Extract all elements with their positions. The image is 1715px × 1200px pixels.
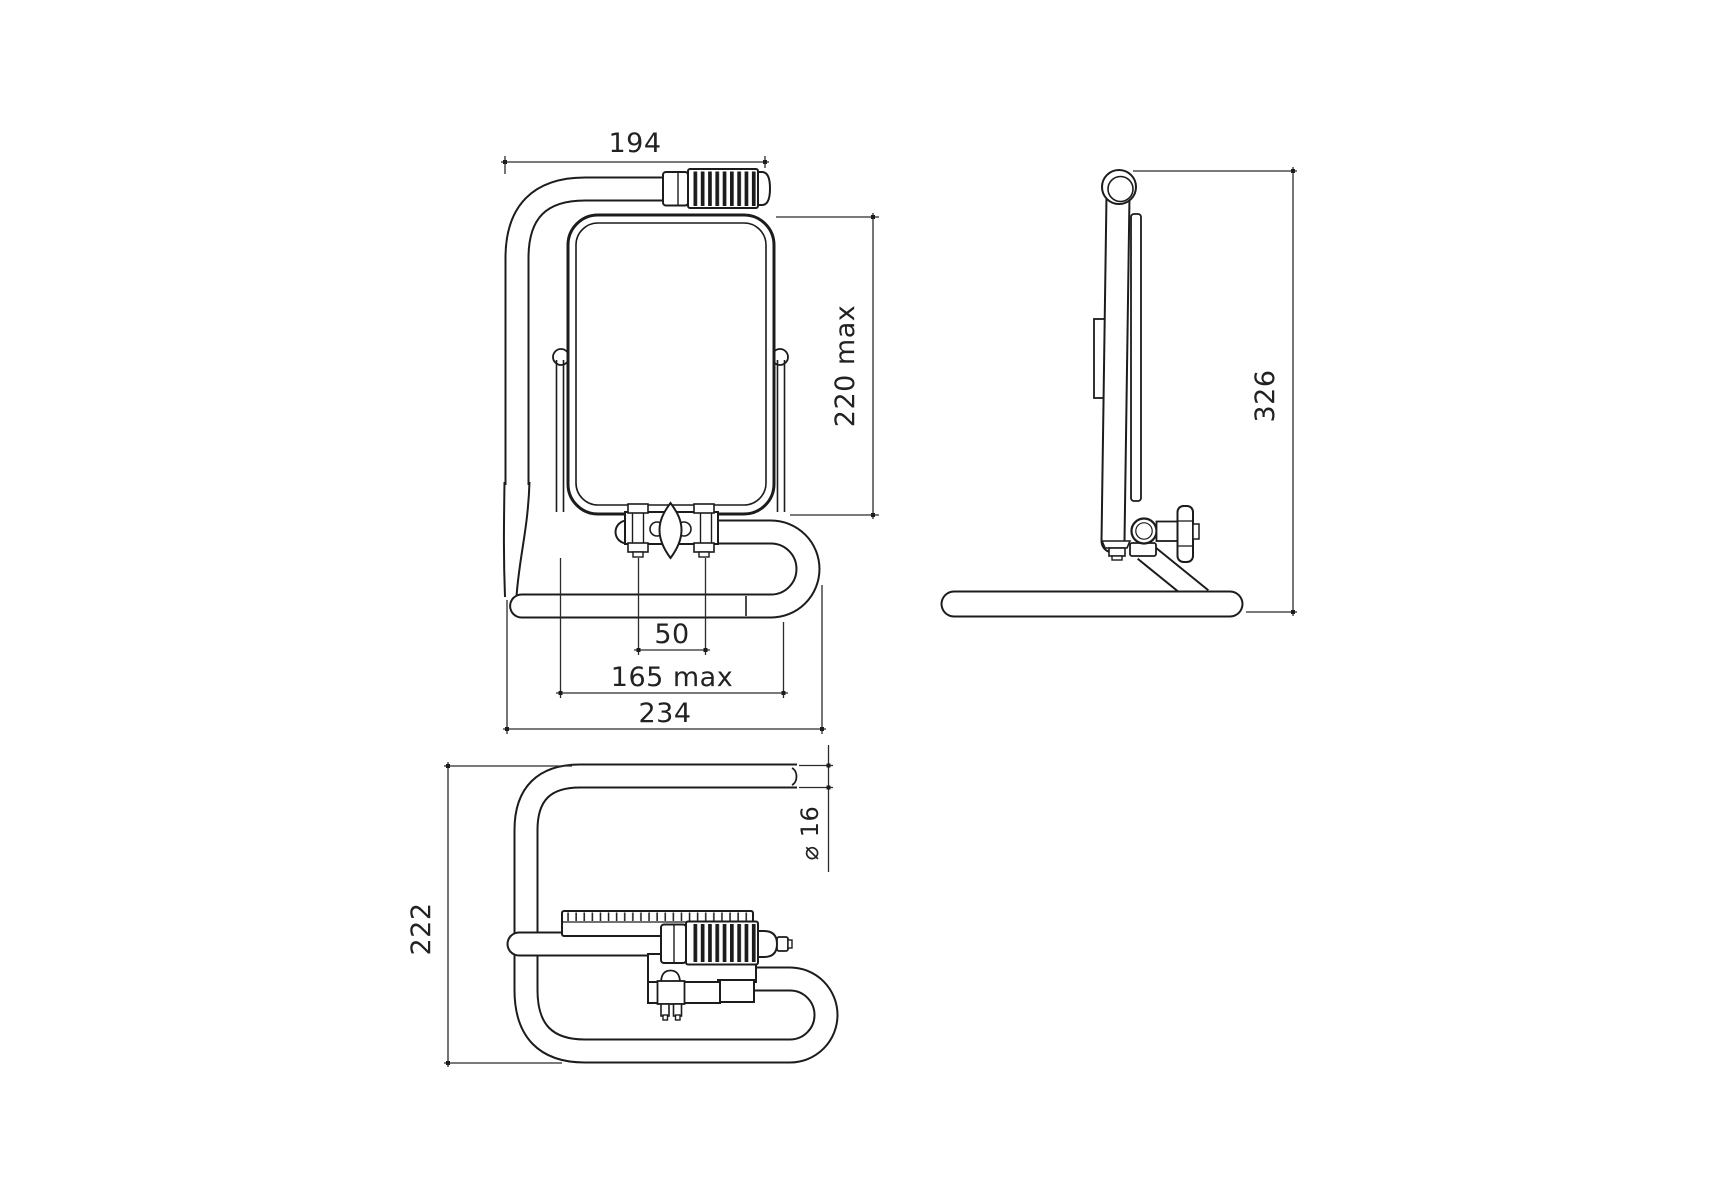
handle-ribs bbox=[693, 172, 757, 207]
front-view: 194 220 max 50 165 max bbox=[501, 128, 879, 734]
handle-cross-section bbox=[1102, 170, 1136, 204]
tube-end-nut bbox=[1109, 548, 1125, 556]
dim-text-222: 222 bbox=[406, 902, 437, 955]
lamp-body bbox=[568, 215, 774, 514]
dim-text-dia16: ⌀ 16 bbox=[796, 806, 824, 861]
clamp-nut bbox=[628, 543, 648, 552]
lamp-panel-edge bbox=[1131, 214, 1141, 501]
bolt-tip bbox=[633, 552, 643, 557]
knob-shaft bbox=[1157, 522, 1178, 542]
handle-ribs bbox=[691, 924, 757, 962]
handle-nub bbox=[777, 937, 788, 951]
dimension-frame-width: 194 bbox=[501, 128, 769, 174]
clamp-nut bbox=[694, 543, 714, 552]
frame-tube-taper bbox=[504, 485, 530, 597]
handle-grip-top bbox=[661, 922, 792, 965]
wing-knob-side bbox=[1178, 506, 1200, 562]
dimension-base-depth: 222 bbox=[406, 762, 572, 1067]
dimension-lamp-height: 220 max bbox=[776, 213, 879, 519]
clamp-nut bbox=[628, 504, 648, 513]
pivot-clamp-plate bbox=[1130, 543, 1156, 556]
lamp-head bbox=[568, 215, 774, 514]
bolt-tip bbox=[699, 552, 709, 557]
dim-text-194: 194 bbox=[608, 128, 661, 159]
dim-text-326: 326 bbox=[1250, 369, 1281, 422]
technical-drawing-worklight: 194 220 max 50 165 max bbox=[0, 0, 1715, 1200]
dimension-tube-diameter: ⌀ 16 bbox=[796, 745, 833, 872]
tube-end-washer bbox=[1102, 541, 1130, 548]
dim-text-234: 234 bbox=[638, 698, 691, 729]
clamp-plate-step bbox=[718, 980, 754, 1002]
dim-text-50: 50 bbox=[654, 619, 689, 650]
handle-end-cap bbox=[758, 931, 777, 957]
dim-text-220max: 220 max bbox=[830, 305, 861, 427]
top-view: 222 ⌀ 16 bbox=[406, 745, 833, 1067]
dim-text-165max: 165 max bbox=[611, 662, 733, 693]
cooling-fins bbox=[566, 913, 748, 922]
drawing-sheet: 194 220 max 50 165 max bbox=[0, 0, 1715, 1200]
handle-collar bbox=[663, 172, 688, 206]
side-view: 326 bbox=[954, 167, 1297, 616]
clamp-nut bbox=[694, 504, 714, 513]
clamp-bracket bbox=[625, 503, 718, 558]
tube-end-nut-tip bbox=[1112, 556, 1122, 560]
handle-grip bbox=[663, 169, 770, 208]
upright-tube bbox=[1113, 196, 1118, 541]
